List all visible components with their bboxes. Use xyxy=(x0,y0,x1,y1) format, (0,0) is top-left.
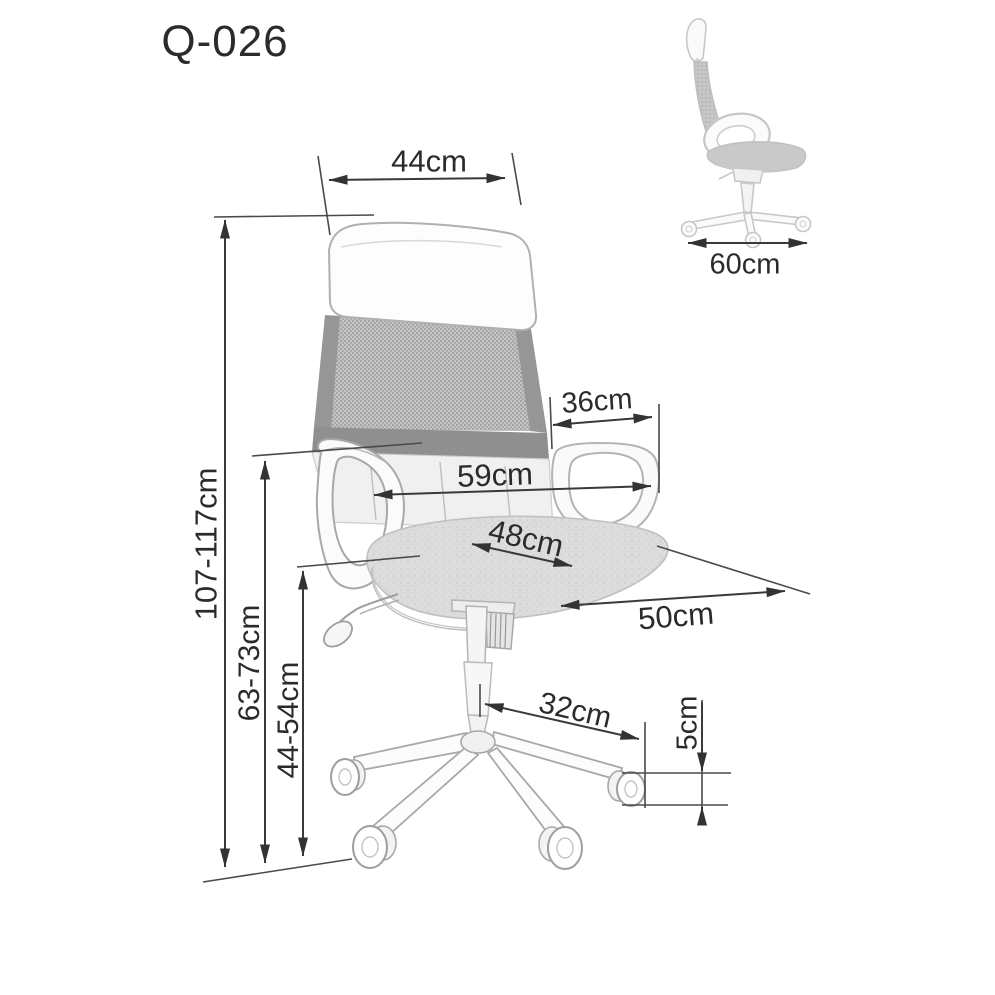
ext-headrest-left xyxy=(318,156,330,235)
side-view-drawing xyxy=(682,19,811,248)
dim-caster-height: 5cm xyxy=(674,696,703,751)
ext-headrest-right xyxy=(512,153,521,205)
side-mechanism xyxy=(733,168,763,183)
dim-backrest-lower-width: 36cm xyxy=(561,385,634,419)
side-gas-lift xyxy=(741,183,754,213)
ext-total-height-top xyxy=(214,215,374,217)
base-star xyxy=(354,731,622,843)
dim-overall-width: 59cm xyxy=(457,458,534,492)
ext-seat-depth-projection xyxy=(657,546,810,594)
mesh-backrest xyxy=(314,315,547,433)
caster-left xyxy=(331,759,365,795)
side-headrest xyxy=(687,19,706,61)
dim-headrest-width: 44cm xyxy=(391,146,467,177)
dim-seat-height: 44-54cm xyxy=(274,662,304,779)
dim-total-height: 107-117cm xyxy=(191,468,222,621)
dim-backrest-height: 63-73cm xyxy=(235,605,265,722)
ext-armrest-left xyxy=(550,397,552,449)
headrest xyxy=(329,223,536,330)
dim-side-depth: 60cm xyxy=(710,251,781,280)
caster-right xyxy=(608,771,645,806)
chair-diagram-svg xyxy=(0,0,995,995)
dim-seat-depth: 50cm xyxy=(637,598,715,635)
model-title: Q-026 xyxy=(161,20,288,64)
caster-front-right xyxy=(539,827,582,869)
diagram-canvas: Q-026 44cm 60cm 36cm 59cm 48cm 50cm 32cm… xyxy=(0,0,995,995)
caster-front-left xyxy=(353,826,396,868)
gas-lift xyxy=(452,600,515,739)
